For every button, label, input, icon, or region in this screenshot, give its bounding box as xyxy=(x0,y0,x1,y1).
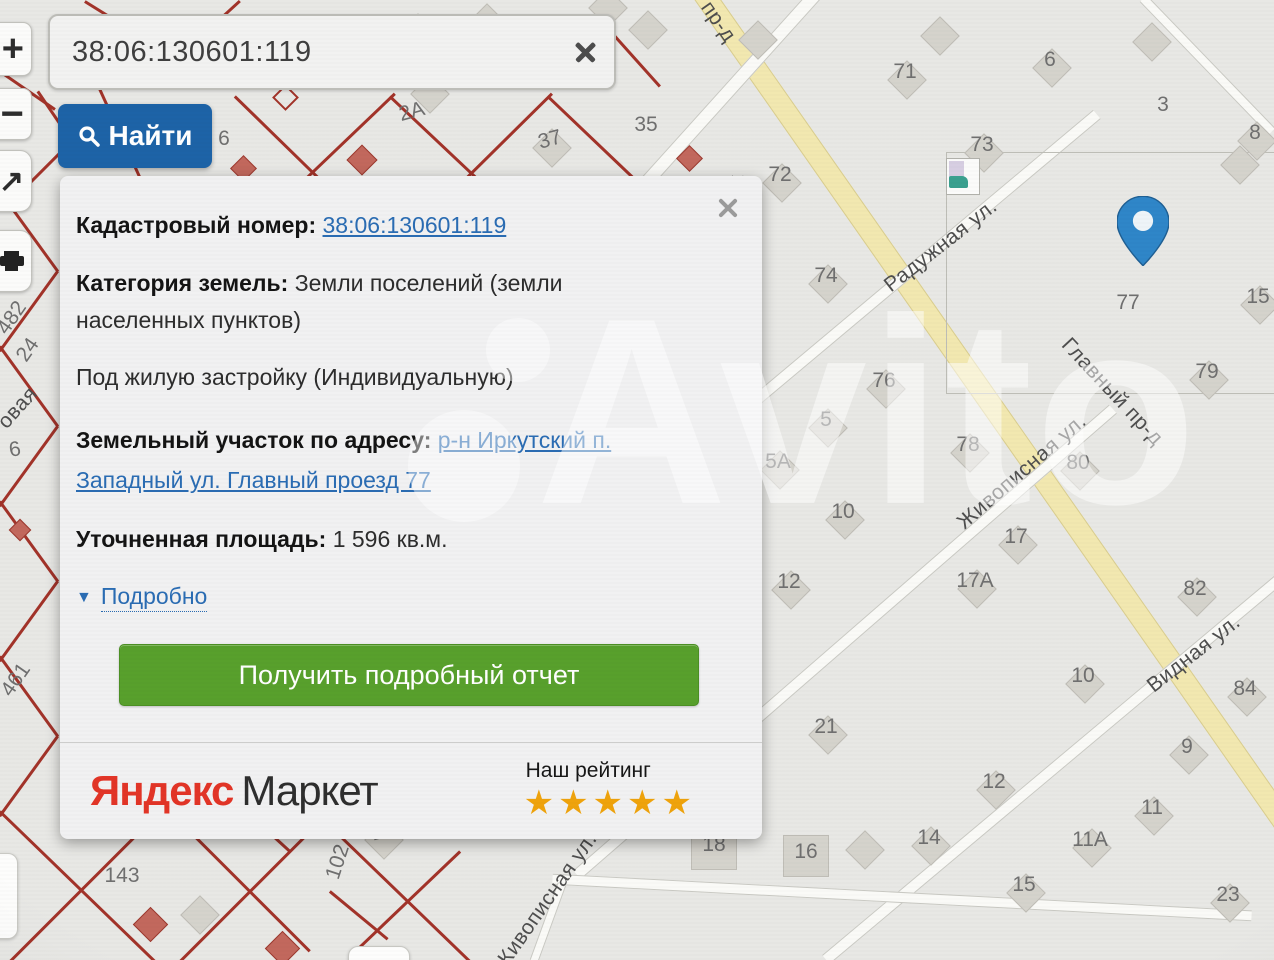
yandex-market-logo[interactable]: ЯндексМаркет xyxy=(90,767,378,815)
plot-number-label: 76 xyxy=(872,369,895,393)
plot-number-label: 5А xyxy=(765,450,791,474)
plot-number-label: 79 xyxy=(1195,360,1218,384)
screen: 716387335372А72747715797655А788010171217… xyxy=(0,0,1274,960)
plot-number-label: 143 xyxy=(104,864,139,888)
plot-number-label: 78 xyxy=(956,433,979,457)
plot-number-label: 5 xyxy=(820,408,832,432)
plot-number-label: 23 xyxy=(1216,883,1239,907)
clear-search-icon[interactable] xyxy=(570,37,600,67)
panel-footer: ЯндексМаркет Наш рейтинг ★★★★★ xyxy=(76,743,742,839)
plot-number-label: 12 xyxy=(777,570,800,594)
area-label: Уточненная площадь: xyxy=(76,526,326,552)
plot-number-label: 16 xyxy=(794,840,817,864)
cadastral-boundary-line xyxy=(0,581,59,662)
plot-number-label: 14 xyxy=(917,826,940,850)
plot-number-label: 74 xyxy=(814,264,837,288)
plot-number-label: 15 xyxy=(1246,285,1269,309)
cadastral-boundary-line xyxy=(349,850,461,957)
plot-number-label: 6 xyxy=(1044,48,1056,72)
rating-stars: ★★★★★ xyxy=(524,785,696,822)
building xyxy=(628,10,668,50)
plot-number-label: 482 xyxy=(0,297,32,339)
rating-label: Наш рейтинг xyxy=(526,759,696,783)
road-yellow xyxy=(688,0,1274,842)
map-marker-pin[interactable] xyxy=(1117,196,1169,271)
plot-number-label: 11А xyxy=(1072,828,1108,852)
details-toggle[interactable]: ▼ Подробно xyxy=(76,583,236,612)
marker-pin-icon xyxy=(1117,196,1169,266)
plot-number-label: 82 xyxy=(1183,577,1206,601)
land-category-row: Категория земель: Земли поселений (земли… xyxy=(76,265,661,339)
land-category-label: Категория земель: xyxy=(76,270,288,296)
photo-thumbnail-shape xyxy=(949,176,968,188)
plot-number-label: 6 xyxy=(7,437,23,463)
cadastral-boundary-line xyxy=(0,501,59,582)
plot-number-label: 3 xyxy=(1157,93,1169,117)
plot-number-label: 6 xyxy=(218,127,230,151)
address-row: Земельный участок по адресу: р-н Иркутск… xyxy=(76,420,696,500)
plot-number-label: 10 xyxy=(831,500,854,524)
plus-icon: + xyxy=(2,28,24,71)
plot-number-label: 21 xyxy=(814,715,837,739)
plot-number-label: 80 xyxy=(1066,451,1089,475)
plot-number-label: 15 xyxy=(1012,873,1035,897)
plot-number-label: 24 xyxy=(11,334,44,367)
building-red xyxy=(132,906,167,941)
object-select-button[interactable]: ↗ xyxy=(0,150,32,212)
market-logo-text: Маркет xyxy=(241,767,377,814)
yandex-logo-text: Яндекс xyxy=(90,767,233,814)
parcel-info-panel: Кадастровый номер: 38:06:130601:119 Кате… xyxy=(60,176,762,839)
building xyxy=(920,16,960,56)
cadastral-boundary-line xyxy=(329,890,389,940)
cutoff-popup-box xyxy=(348,946,410,960)
plot-number-label: 84 xyxy=(1233,677,1256,701)
details-toggle-label: Подробно xyxy=(101,583,208,612)
search-input[interactable] xyxy=(48,14,616,90)
area-row: Уточненная площадь: 1 596 кв.м. xyxy=(76,526,742,553)
photo-thumbnail-icon[interactable] xyxy=(946,158,980,195)
rating-block: Наш рейтинг ★★★★★ xyxy=(524,759,696,822)
plot-number-label: 17А xyxy=(956,569,993,593)
plot-number-label: 17 xyxy=(1004,525,1027,549)
plot-number-label: 102 xyxy=(321,842,355,883)
plot-number-label: 9 xyxy=(1181,735,1193,759)
find-button[interactable]: Найти xyxy=(58,104,212,168)
cadastral-number-label: Кадастровый номер: xyxy=(76,212,316,238)
cadastral-number-row: Кадастровый номер: 38:06:130601:119 xyxy=(76,212,742,239)
area-value: 1 596 кв.м. xyxy=(333,526,448,552)
cadastral-boundary-line xyxy=(304,92,396,180)
arrow-up-right-icon: ↗ xyxy=(0,164,24,199)
land-use-value: Под жилую застройку (Индивидуальную) xyxy=(76,359,742,396)
plot-number-label: 71 xyxy=(893,60,916,84)
road-white xyxy=(552,873,1252,921)
zoom-out-button[interactable]: − xyxy=(0,88,32,140)
street-label: овая xyxy=(0,382,43,433)
zoom-in-button[interactable]: + xyxy=(0,22,32,76)
plot-number-label: 77 xyxy=(1116,291,1139,315)
print-button[interactable] xyxy=(0,230,32,292)
plot-number-label: 72 xyxy=(768,163,791,187)
minus-icon: − xyxy=(1,92,24,137)
close-icon[interactable] xyxy=(714,194,742,222)
chevron-down-icon: ▼ xyxy=(76,589,92,607)
search-icon xyxy=(78,125,100,147)
plot-number-label: 73 xyxy=(970,133,993,157)
plot-number-label: 35 xyxy=(634,113,657,137)
get-report-button[interactable]: Получить подробный отчет xyxy=(119,644,699,706)
cadastral-number-link[interactable]: 38:06:130601:119 xyxy=(323,212,507,238)
search-bar xyxy=(48,14,616,90)
building xyxy=(845,830,885,870)
find-button-label: Найти xyxy=(109,120,193,152)
cutoff-control-box xyxy=(0,853,18,939)
address-label: Земельный участок по адресу: xyxy=(76,427,431,453)
plot-number-label: 11 xyxy=(1141,796,1163,820)
plot-number-label: 12 xyxy=(982,770,1005,794)
printer-icon xyxy=(0,251,24,271)
building-red xyxy=(346,144,377,175)
cadastral-boundary-line xyxy=(0,736,59,817)
tile-boundary xyxy=(946,152,1274,394)
plot-number-label: 8 xyxy=(1249,121,1261,145)
plot-number-label: 10 xyxy=(1071,664,1094,688)
